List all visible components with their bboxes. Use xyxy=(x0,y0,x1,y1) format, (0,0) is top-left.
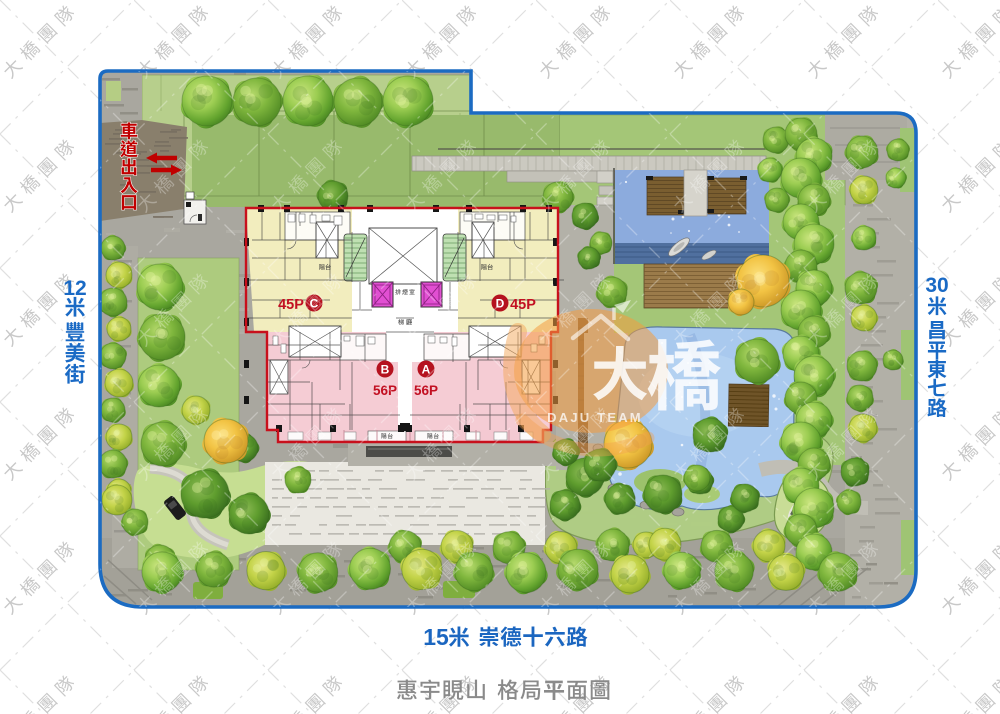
svg-text:15: 15 xyxy=(423,624,449,650)
svg-text:12: 12 xyxy=(63,277,86,300)
svg-text:30: 30 xyxy=(925,274,948,297)
